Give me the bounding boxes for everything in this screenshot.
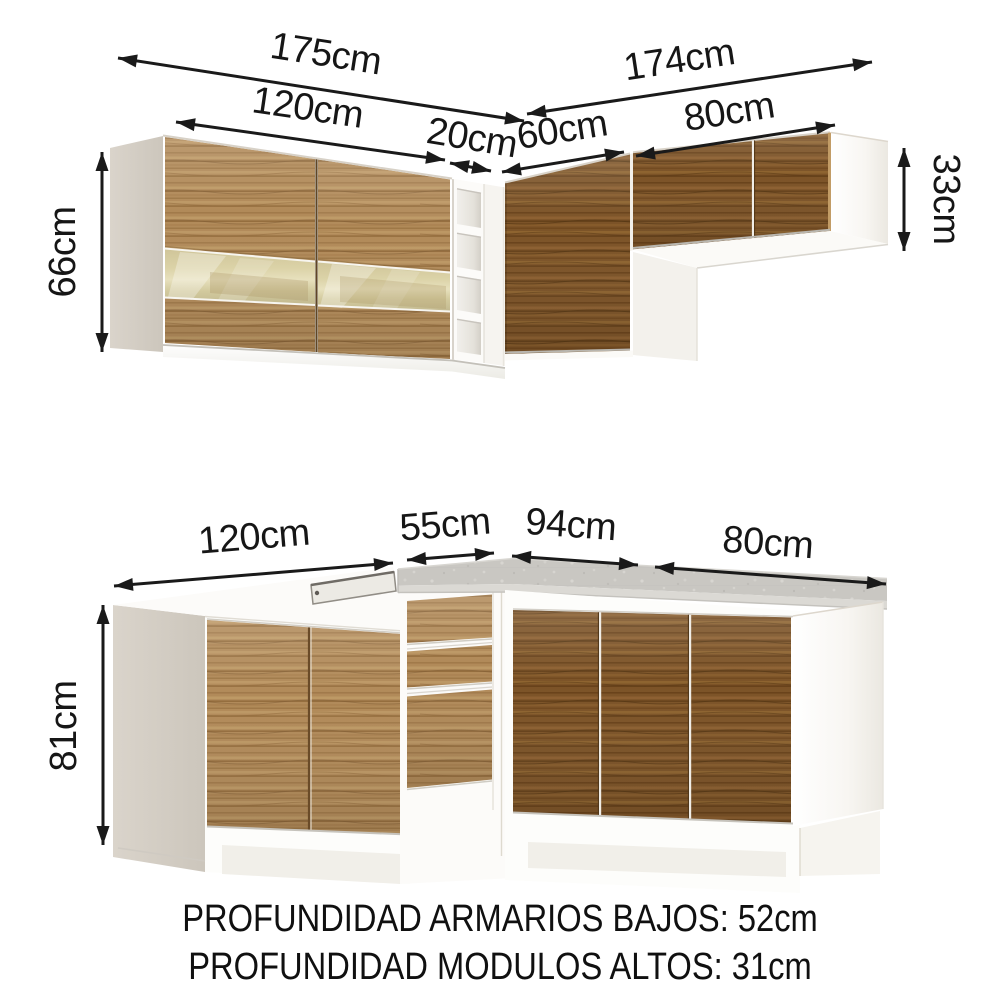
shelf-opening — [457, 188, 481, 228]
note-depth-upper-modules: PROFUNDIDAD MODULOS ALTOS: 31cm — [70, 945, 930, 989]
dim-label-lower-corner: 55cm — [398, 500, 492, 549]
lower-drawer-unit — [400, 586, 513, 884]
lower-left-side-panel — [113, 605, 205, 872]
dim-label-upper-right: 80cm — [681, 84, 777, 140]
dim-label-lower-height: 81cm — [43, 681, 85, 772]
upper-left-side-panel — [110, 136, 163, 352]
kitchen-diagram-svg: 175cm 120cm 20cm 174cm 60cm 80cm 66cm 33… — [0, 0, 1000, 1000]
shelf-opening — [457, 319, 481, 356]
dim-label-upper-height: 66cm — [42, 207, 84, 298]
upper-corner-side — [633, 252, 697, 361]
upper-corner-cabinet — [505, 153, 633, 360]
dim-label-upper-total-left: 175cm — [267, 25, 384, 84]
dim-label-upper-total-right: 174cm — [621, 31, 738, 89]
lower-right-side-panel — [793, 602, 883, 826]
dim-label-lower-right: 80cm — [721, 519, 815, 568]
dim-label-upper-right-height: 33cm — [925, 154, 967, 245]
dim-arrow-lower-corner — [407, 553, 494, 560]
dim-label-lower-right-doors: 94cm — [524, 501, 618, 549]
upper-cabinets — [110, 132, 888, 379]
dim-label-upper-corner: 60cm — [514, 102, 610, 158]
upper-shelf-unit — [454, 179, 505, 366]
note-depth-base-cabinets: PROFUNDIDAD ARMARIOS BAJOS: 52cm — [70, 897, 930, 941]
upper-corner-filler — [484, 184, 505, 366]
upper-left-cabinet — [110, 136, 505, 380]
lower-cabinets — [113, 559, 887, 894]
upper-right-cabinet — [633, 132, 888, 361]
product-dimension-diagram: 175cm 120cm 20cm 174cm 60cm 80cm 66cm 33… — [0, 0, 1000, 1000]
cabinet-edge — [828, 133, 831, 232]
lower-right-cabinet — [505, 590, 883, 893]
shelf-opening — [457, 233, 481, 272]
dim-label-lower-doors: 120cm — [197, 511, 312, 562]
shelf-opening — [457, 276, 481, 315]
upper-right-side-panel — [831, 133, 888, 245]
dim-label-upper-doors: 120cm — [250, 79, 366, 136]
lower-left-cabinet — [113, 567, 410, 884]
dim-arrow-upper-shelf — [450, 163, 491, 171]
